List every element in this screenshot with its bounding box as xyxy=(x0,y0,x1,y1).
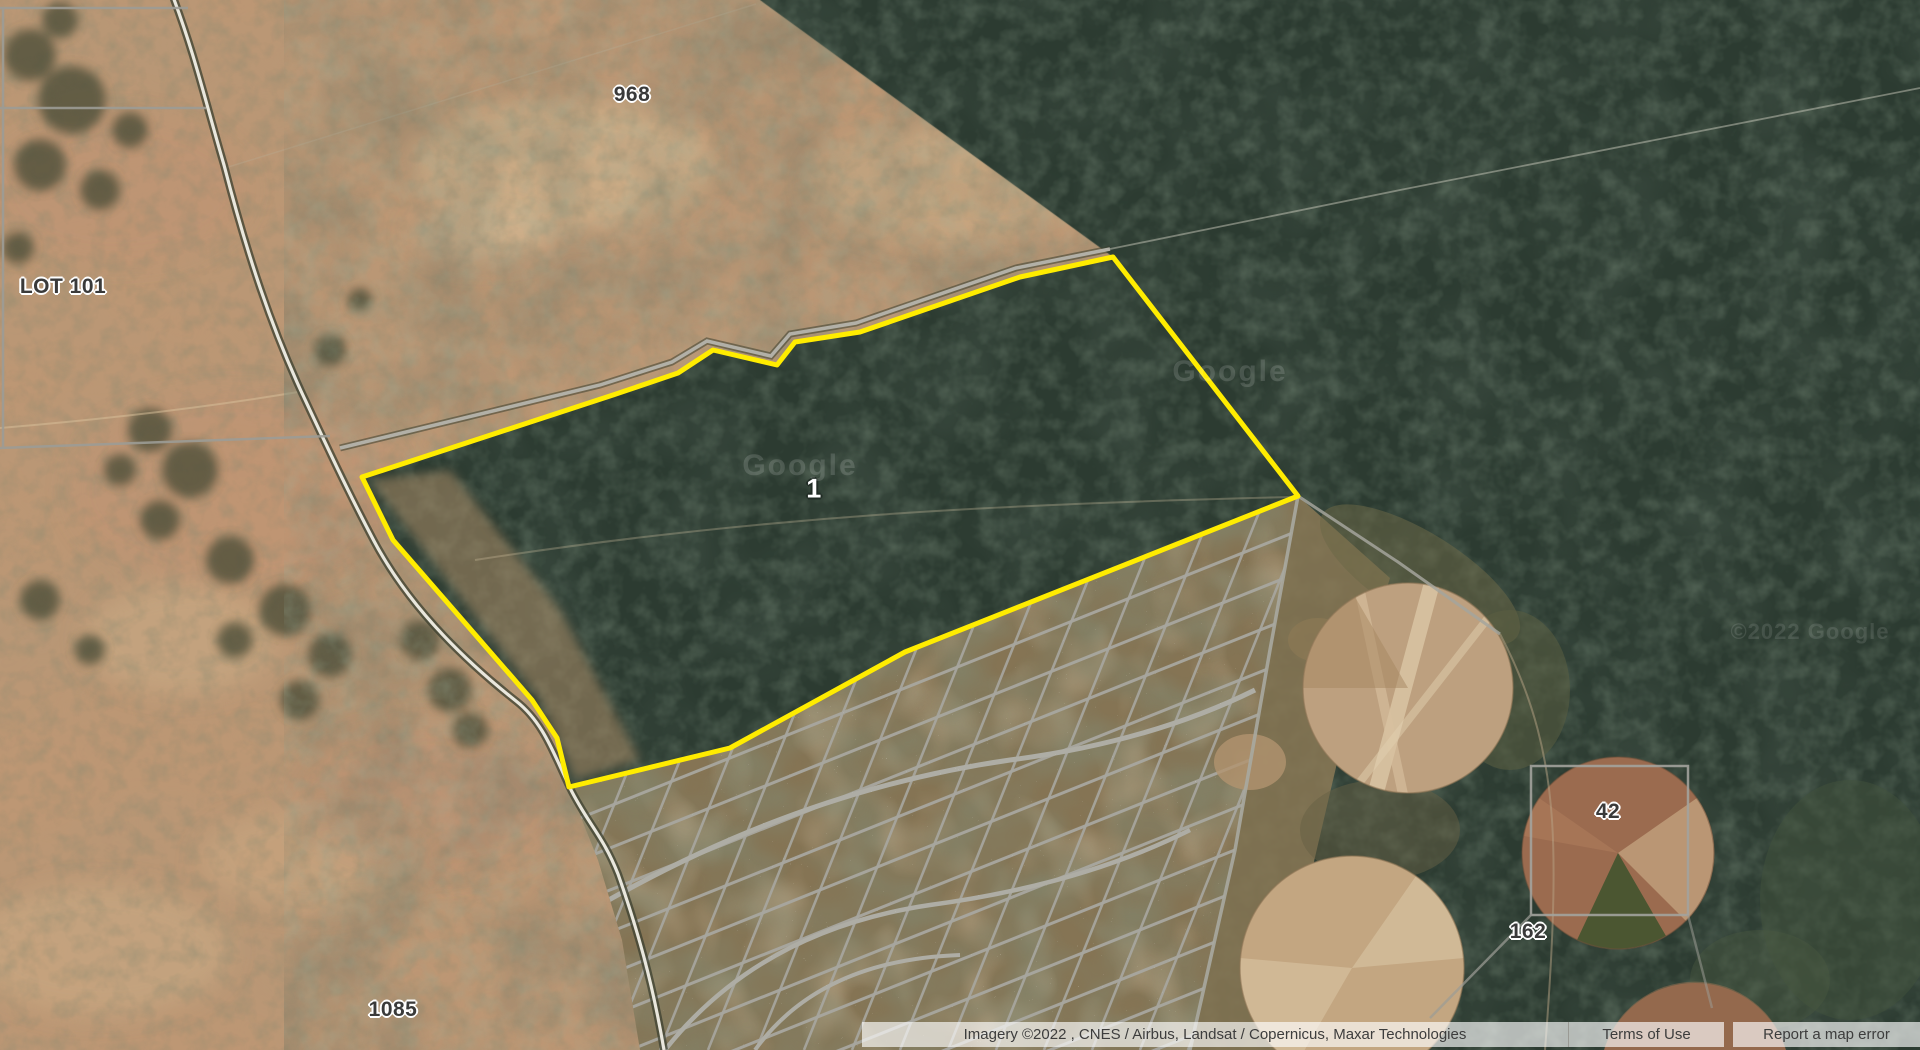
terms-of-use-link[interactable]: Terms of Use xyxy=(1568,1022,1724,1047)
report-map-error-link[interactable]: Report a map error xyxy=(1733,1022,1920,1047)
satellite-map-canvas[interactable]: 968LOT 1011421621085GoogleGoogle©2022 Go… xyxy=(0,0,1920,1050)
satellite-imagery xyxy=(0,0,1920,1050)
imagery-attribution: Imagery ©2022 , CNES / Airbus, Landsat /… xyxy=(862,1022,1568,1047)
